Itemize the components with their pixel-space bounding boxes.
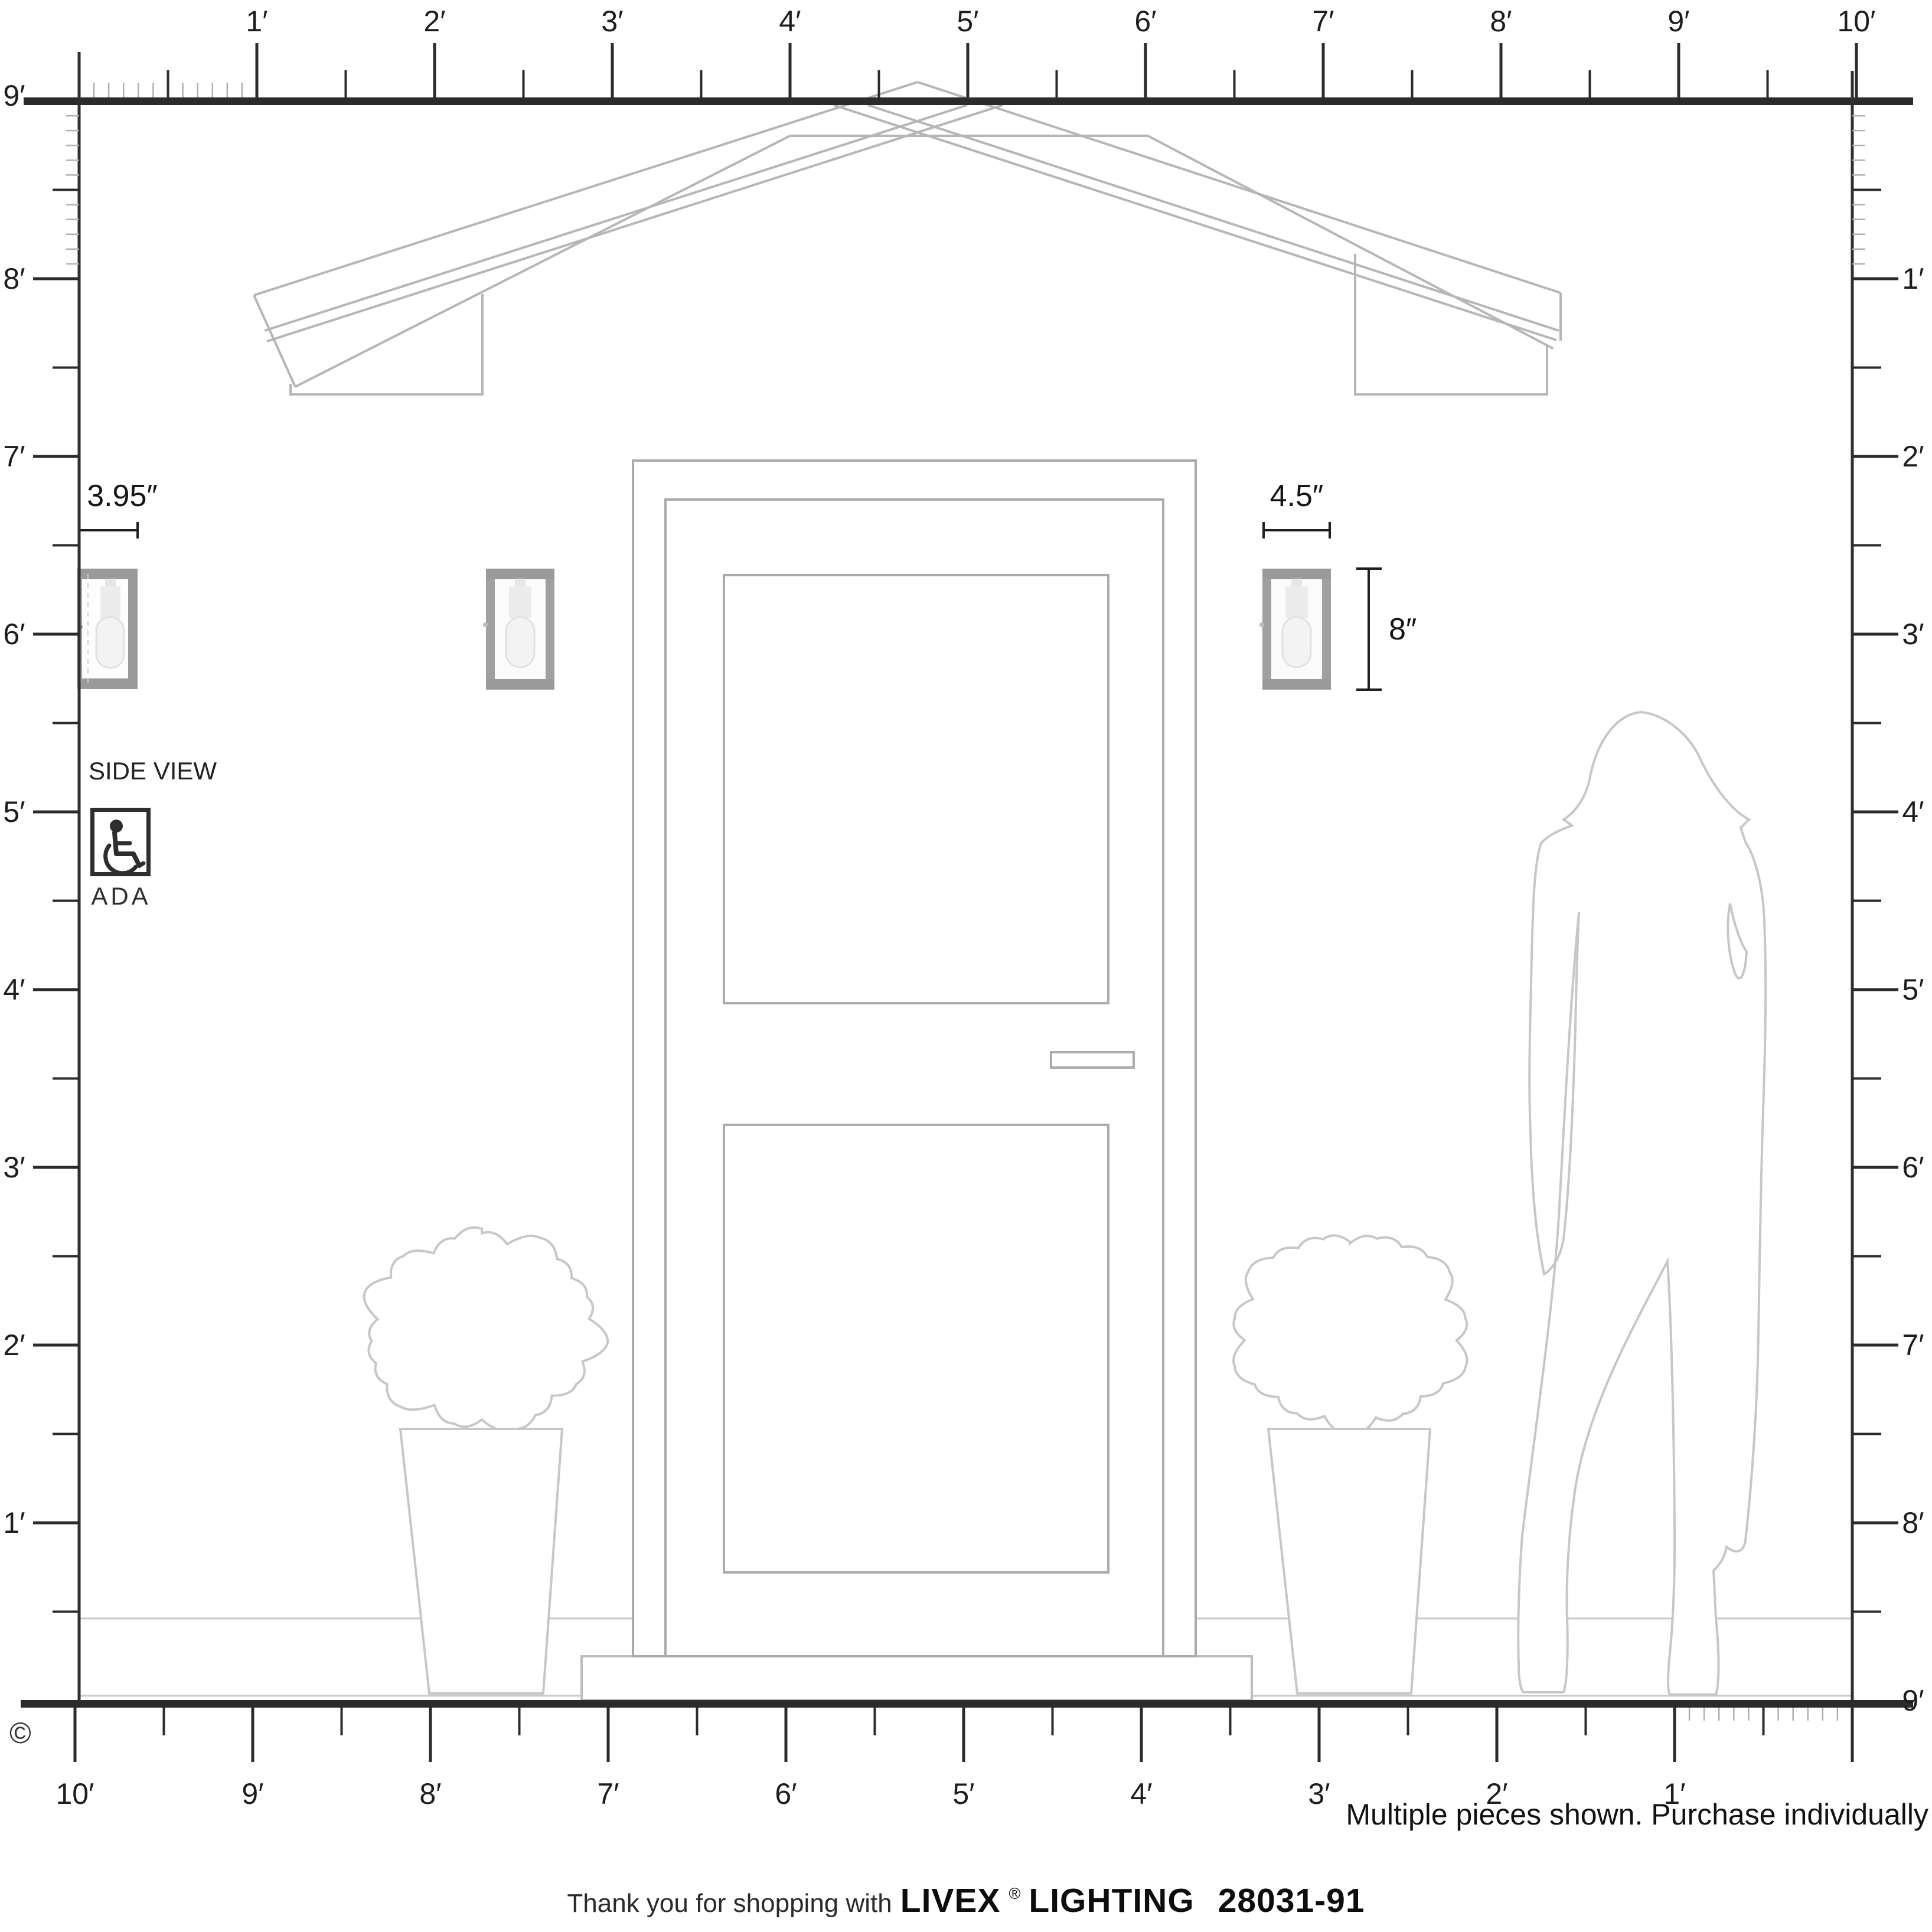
planter-pot-right bbox=[1268, 1429, 1430, 1693]
ruler-right-label: 8′ bbox=[1902, 1506, 1924, 1540]
footer: Thank you for shopping with LIVEX ® LIGH… bbox=[0, 1881, 1932, 1920]
ruler-top-label: 10′ bbox=[1838, 4, 1876, 38]
registered-mark: ® bbox=[1009, 1885, 1020, 1903]
ruler-left-label: 4′ bbox=[3, 972, 25, 1007]
ruler-bottom-label: 6′ bbox=[775, 1777, 797, 1811]
topiary-bush-right bbox=[1233, 1235, 1467, 1435]
dimension-front-width-label: 4.5″ bbox=[1270, 478, 1324, 514]
ruler-right-label: 1′ bbox=[1902, 262, 1924, 296]
dimension-front-width bbox=[1264, 522, 1330, 539]
ruler-left-label: 2′ bbox=[3, 1328, 25, 1362]
porch-roof bbox=[254, 82, 1561, 394]
topiary-bush-left bbox=[364, 1228, 608, 1430]
ruler-left-label: 6′ bbox=[3, 617, 25, 651]
dimension-side-width-label: 3.95″ bbox=[87, 478, 158, 514]
bulb-socket bbox=[1291, 579, 1302, 586]
mount-screw bbox=[1259, 622, 1264, 627]
ruler-right-label: 3′ bbox=[1902, 617, 1924, 651]
ruler-bottom-label: 3′ bbox=[1308, 1777, 1330, 1811]
brand-suffix: LIGHTING bbox=[1029, 1881, 1194, 1920]
ruler-top-label: 2′ bbox=[423, 4, 445, 38]
ruler-top-label: 1′ bbox=[246, 4, 267, 38]
bulb-socket bbox=[105, 579, 116, 587]
mount-screw bbox=[483, 622, 488, 627]
ruler-bottom-label: 5′ bbox=[952, 1777, 974, 1811]
roof-bracket-left bbox=[291, 294, 482, 394]
ruler-top-label: 4′ bbox=[779, 4, 801, 38]
ruler-right-label: 9′ bbox=[1902, 1683, 1924, 1718]
ruler-top-label: 6′ bbox=[1134, 4, 1156, 38]
ruler-top-label: 5′ bbox=[957, 4, 978, 38]
ruler-right-label: 4′ bbox=[1902, 795, 1924, 829]
ruler-bottom-label: 7′ bbox=[597, 1777, 619, 1811]
ruler-right-label: 5′ bbox=[1902, 972, 1924, 1007]
ada-icon-box bbox=[90, 808, 151, 876]
ruler-bottom-label: 10′ bbox=[56, 1777, 94, 1811]
diagram-drawing bbox=[0, 0, 1932, 1932]
light-bulb bbox=[506, 617, 534, 667]
ruler-left-label: 7′ bbox=[3, 439, 25, 474]
ada-label: ADA bbox=[84, 882, 158, 910]
ruler-top-label: 3′ bbox=[601, 4, 623, 38]
front-door bbox=[633, 461, 1196, 1656]
dimension-front-height-label: 8″ bbox=[1389, 612, 1417, 647]
product-sku: 28031-91 bbox=[1218, 1881, 1365, 1920]
ruler-bottom-label: 4′ bbox=[1130, 1777, 1152, 1811]
door-panel-upper bbox=[724, 575, 1108, 1003]
sconce-front-left bbox=[483, 569, 554, 690]
side-view-label: SIDE VIEW bbox=[89, 757, 217, 785]
dimension-side-width bbox=[80, 522, 138, 539]
sconce-front-right bbox=[1259, 569, 1331, 690]
light-bulb bbox=[96, 617, 124, 668]
ruler-right-label: 6′ bbox=[1902, 1150, 1924, 1184]
ruler-left-label: 3′ bbox=[3, 1150, 25, 1184]
bulb-socket bbox=[515, 579, 526, 586]
scale-diagram: 1′2′3′4′5′6′7′8′9′10′9′8′7′6′5′4′3′2′1′1… bbox=[0, 0, 1932, 1932]
ruler-left-label: 8′ bbox=[3, 262, 25, 296]
roof-bracket-right bbox=[1355, 254, 1547, 394]
ruler-bar-top bbox=[24, 97, 1913, 105]
ruler-top-label: 8′ bbox=[1490, 4, 1512, 38]
ruler-left-label: 9′ bbox=[3, 79, 25, 113]
ruler-bar-bottom bbox=[21, 1700, 1913, 1708]
light-bulb bbox=[1282, 617, 1311, 667]
ruler-bottom-label: 8′ bbox=[419, 1777, 441, 1811]
ruler-left-label: 5′ bbox=[3, 795, 25, 829]
brand-name: LIVEX bbox=[900, 1881, 1001, 1920]
planter-pot-left bbox=[400, 1429, 562, 1693]
door-handle bbox=[1051, 1052, 1134, 1068]
footer-thanks-text: Thank you for shopping with bbox=[567, 1889, 892, 1918]
ruler-top-label: 9′ bbox=[1667, 4, 1689, 38]
dimension-front-height bbox=[1356, 569, 1382, 690]
ruler-left-label: 1′ bbox=[3, 1506, 25, 1540]
ruler-right-label: 7′ bbox=[1902, 1328, 1924, 1362]
ruler-top-label: 7′ bbox=[1312, 4, 1334, 38]
purchase-note: Multiple pieces shown. Purchase individu… bbox=[1346, 1797, 1928, 1832]
door-step bbox=[582, 1656, 1252, 1700]
ruler-right-label: 2′ bbox=[1902, 439, 1924, 474]
ruler-bottom-label: 9′ bbox=[241, 1777, 263, 1811]
door-panel-lower bbox=[724, 1125, 1108, 1572]
sconce-side-view bbox=[77, 569, 138, 689]
person-silhouette bbox=[1518, 712, 1765, 1695]
copyright-mark: © bbox=[9, 1716, 31, 1750]
